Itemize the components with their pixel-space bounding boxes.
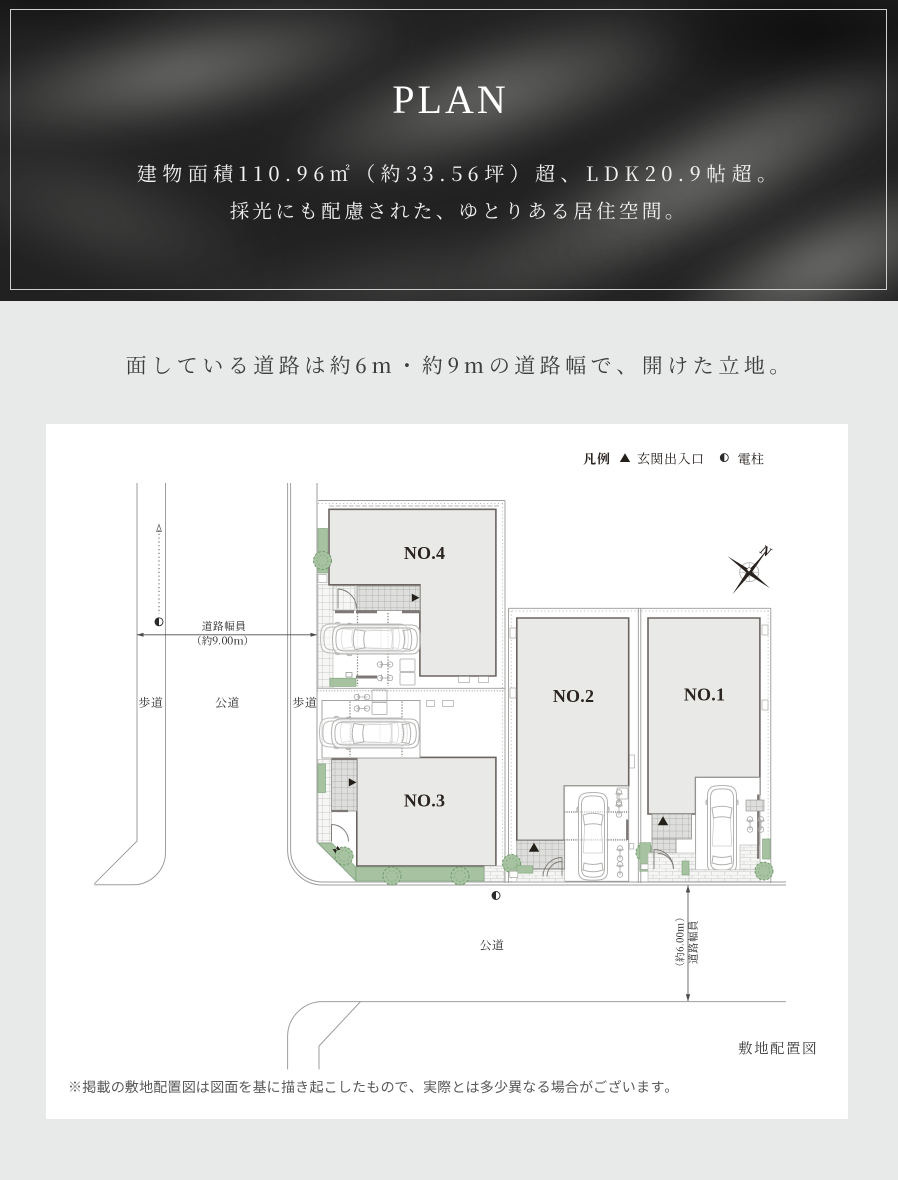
svg-text:凡例: 凡例 xyxy=(583,449,611,468)
svg-text:（約9.00m）: （約9.00m） xyxy=(191,634,254,649)
svg-text:歩道: 歩道 xyxy=(292,694,317,711)
svg-text:歩道: 歩道 xyxy=(138,694,163,711)
svg-text:玄関出入口: 玄関出入口 xyxy=(637,449,705,468)
svg-text:NO.4: NO.4 xyxy=(404,543,445,563)
svg-text:NO.2: NO.2 xyxy=(553,686,594,706)
svg-text:敷地配置図: 敷地配置図 xyxy=(738,1038,818,1059)
svg-text:N: N xyxy=(756,542,774,561)
svg-text:公道: 公道 xyxy=(479,937,504,954)
svg-text:電柱: 電柱 xyxy=(738,449,765,468)
svg-text:NO.3: NO.3 xyxy=(404,791,445,811)
svg-text:道路幅員: 道路幅員 xyxy=(202,619,246,634)
svg-text:公道: 公道 xyxy=(215,694,240,711)
svg-text:NO.1: NO.1 xyxy=(684,685,725,705)
svg-text:道路幅員: 道路幅員 xyxy=(686,920,701,964)
svg-text:（約6.00m）: （約6.00m） xyxy=(672,912,687,972)
